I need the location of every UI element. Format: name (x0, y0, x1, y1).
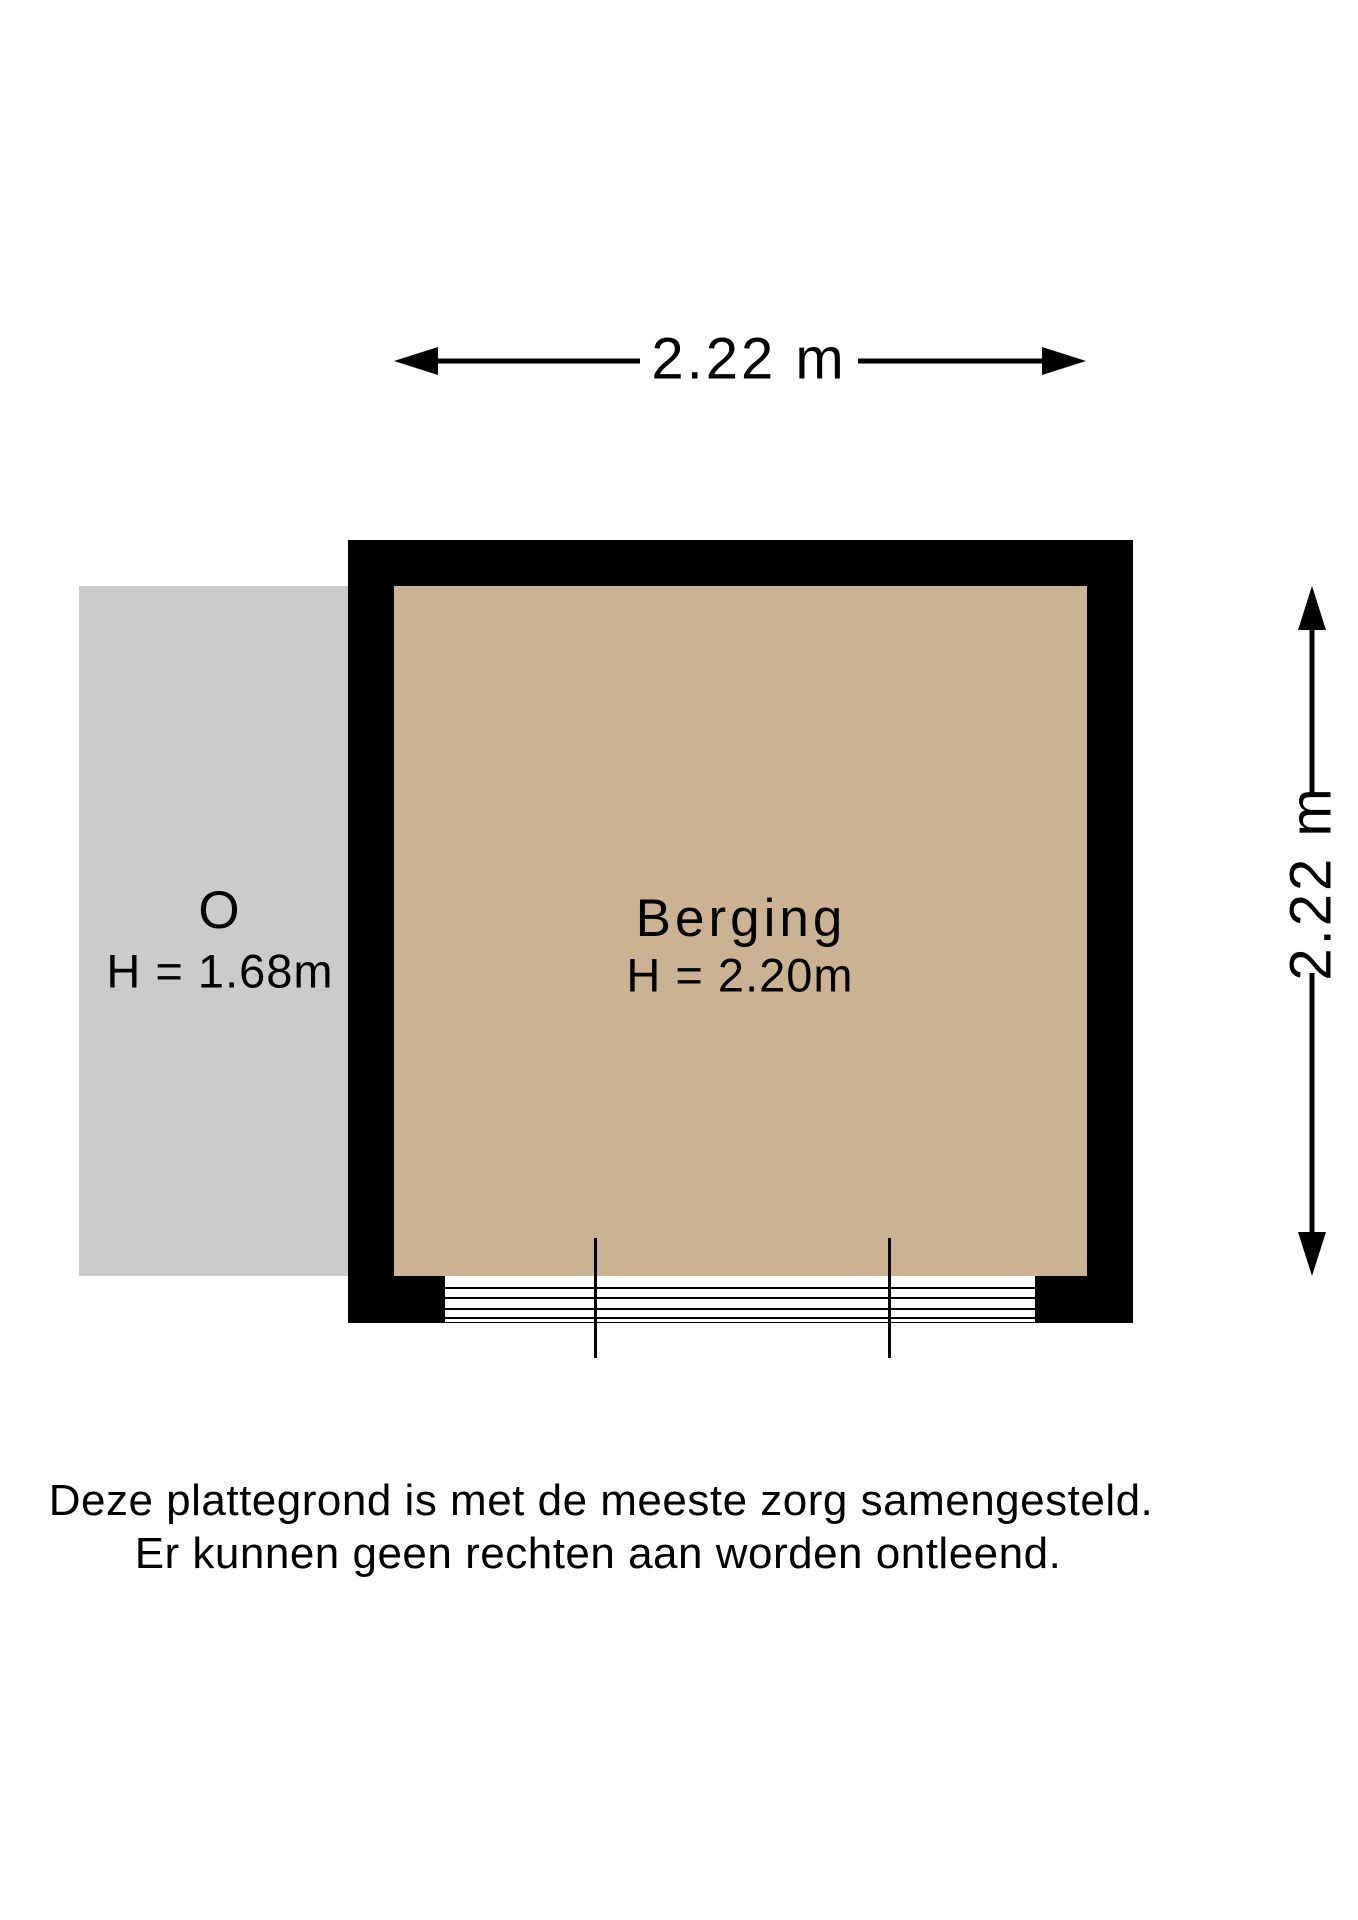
room-height-label: H = 2.20m (626, 950, 853, 999)
window-line (445, 1308, 1035, 1310)
width-dimension-label: 2.22 m (651, 330, 846, 391)
height-dimension-label: 2.22 m (1282, 785, 1343, 980)
height-arrowhead-bottom-icon (1298, 1232, 1326, 1276)
window-line (445, 1297, 1035, 1299)
annex-name-label: O (198, 883, 243, 939)
window-divider (594, 1238, 597, 1358)
width-arrowhead-left-icon (394, 347, 438, 375)
disclaimer-line-2: Er kunnen geen rechten aan worden ontlee… (135, 1531, 1062, 1577)
window-opening (445, 1276, 1035, 1322)
disclaimer-line-1: Deze plattegrond is met de meeste zorg s… (49, 1478, 1154, 1524)
width-arrowhead-right-icon (1042, 347, 1086, 375)
window-line (445, 1287, 1035, 1289)
room-name-label: Berging (636, 891, 847, 947)
height-arrowhead-top-icon (1298, 586, 1326, 630)
window-divider (888, 1238, 891, 1358)
window-line (445, 1317, 1035, 1319)
floorplan-canvas: 2.22 m 2.22 m O H = 1.68m Berging H = 2.… (0, 0, 1358, 1920)
annex-height-label: H = 1.68m (106, 946, 333, 995)
